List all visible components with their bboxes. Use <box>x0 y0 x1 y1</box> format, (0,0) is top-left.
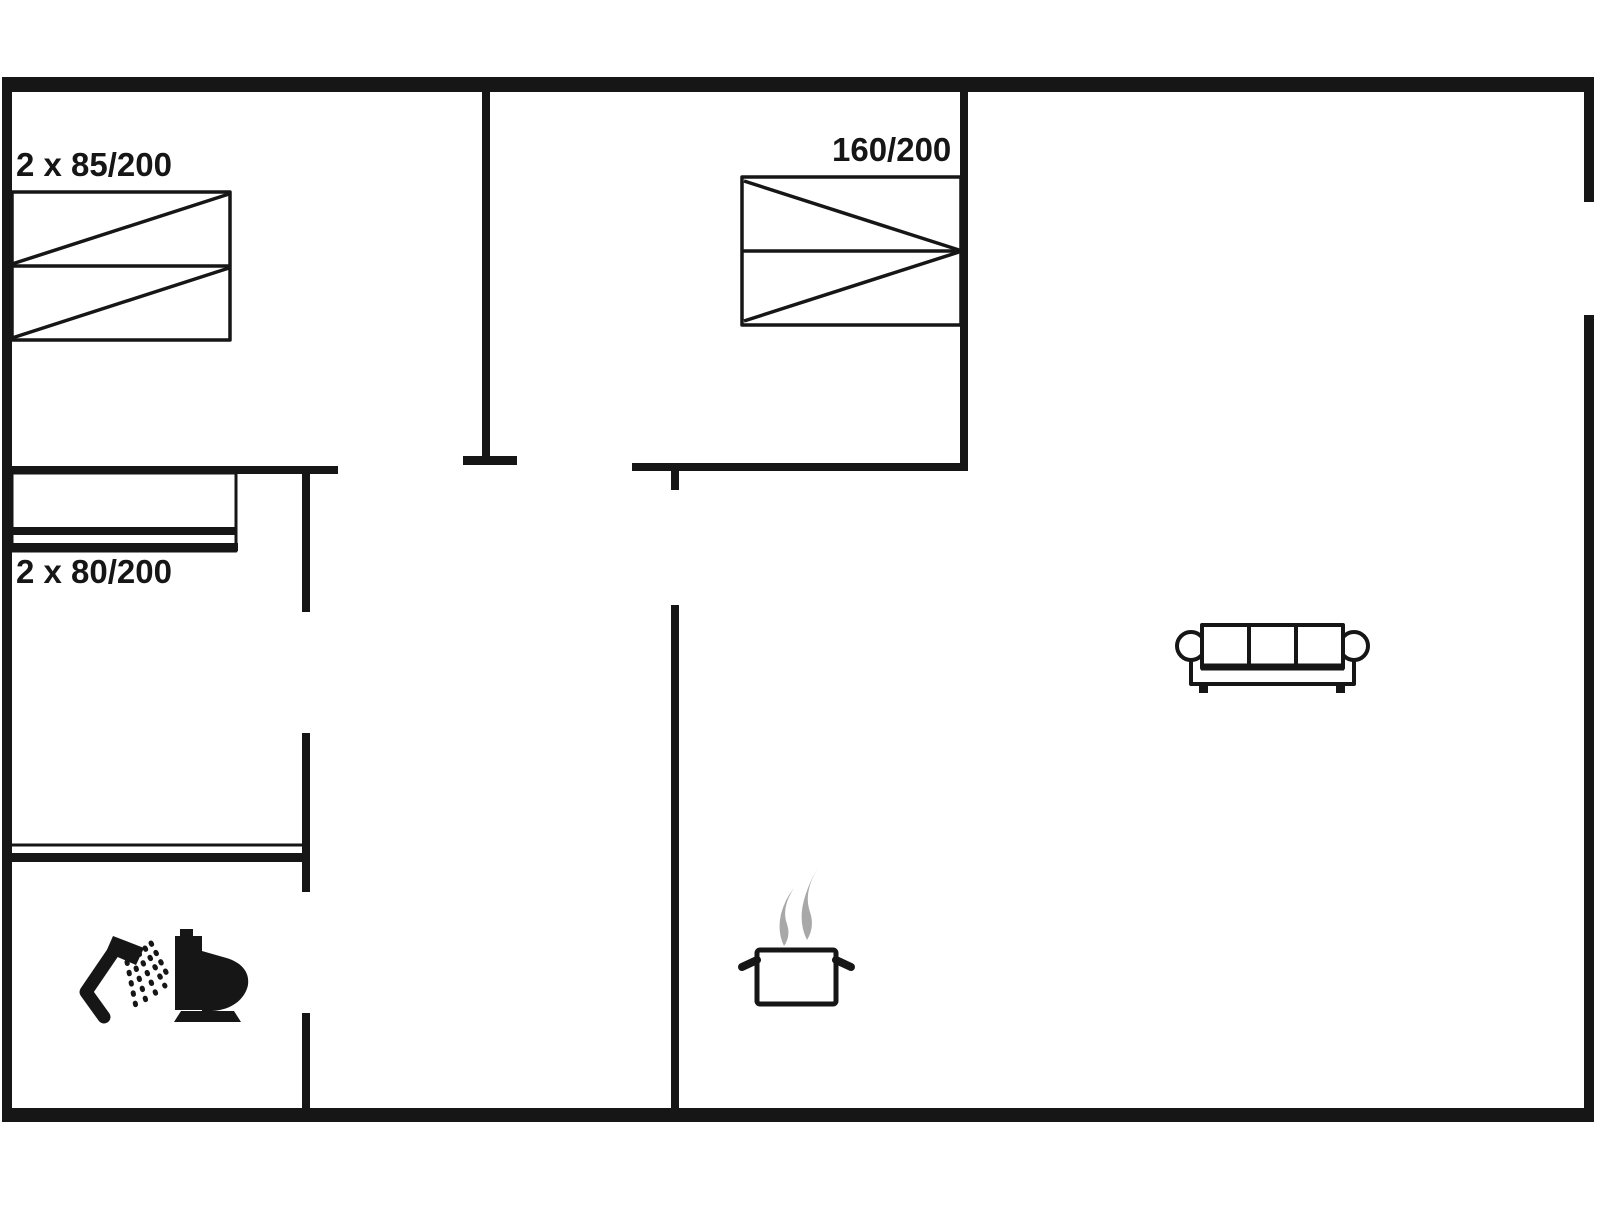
wall-bedroom1-right <box>482 92 490 458</box>
steam-wisp-right <box>802 868 818 940</box>
shower-arm <box>86 948 116 1017</box>
bed-size-label-middle: 160/200 <box>832 133 951 166</box>
bed-middle-diagonal-top <box>744 181 959 250</box>
wall-bathroom-right-lower <box>302 1013 310 1108</box>
wall-outer-right-lower <box>1584 315 1594 1122</box>
wall-bedroom1-right-endcap <box>463 456 517 465</box>
bed-left-diagonal-top <box>12 194 229 264</box>
bunk-size-label: 2 x 80/200 <box>16 555 172 588</box>
wall-kitchen-divider <box>671 605 679 1108</box>
floor-plan-drawing <box>0 0 1606 1205</box>
toilet-bowl <box>202 950 248 1011</box>
bed-size-label-left: 2 x 85/200 <box>16 148 172 181</box>
wall-outer-top <box>2 77 1594 92</box>
steam-wisp-left <box>780 888 794 946</box>
wall-hall-left-upper <box>302 470 310 612</box>
bunk-bed-outline <box>12 473 236 551</box>
pot-body <box>757 950 836 1004</box>
wall-bedroom2-bottom <box>632 463 968 471</box>
wall-outer-bottom <box>2 1108 1594 1122</box>
toilet-tank <box>175 936 202 1010</box>
wall-kitchen-stub <box>671 471 679 490</box>
shower-spray-row-5 <box>151 943 168 976</box>
bed-middle-diagonal-bottom <box>744 252 959 321</box>
sofa-backrest <box>1202 625 1343 668</box>
toilet-base <box>174 1011 241 1022</box>
wall-bathroom-top <box>2 853 310 862</box>
sofa-foot-left <box>1199 684 1208 693</box>
bed-left-diagonal-bottom <box>12 268 229 338</box>
floor-plan: 2 x 85/200 160/200 2 x 80/200 <box>0 0 1606 1205</box>
wall-hall-left-middle <box>302 733 310 892</box>
toilet-button <box>180 929 193 937</box>
wall-outer-right-upper <box>1584 77 1594 202</box>
sofa-foot-right <box>1336 684 1345 693</box>
